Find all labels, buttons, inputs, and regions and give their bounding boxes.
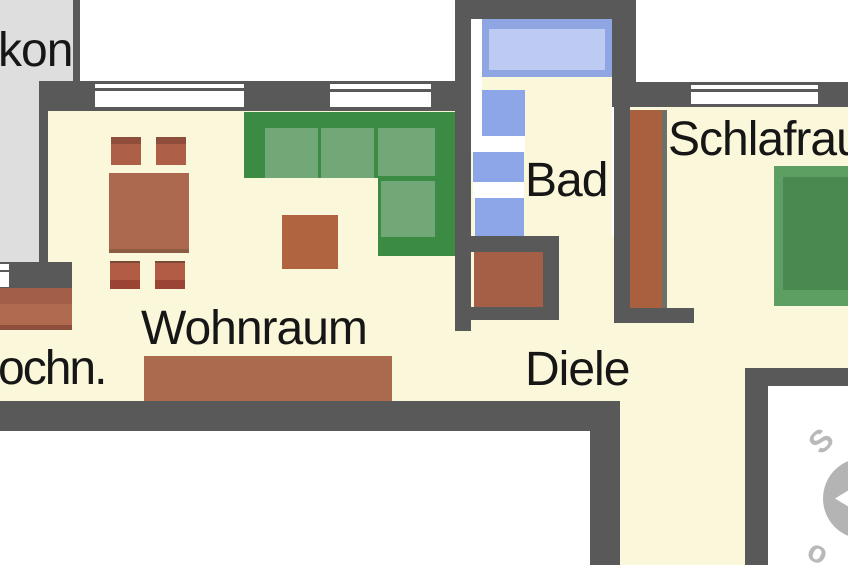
svg-text:S: S [801,421,840,460]
svg-text:o: o [802,532,834,565]
